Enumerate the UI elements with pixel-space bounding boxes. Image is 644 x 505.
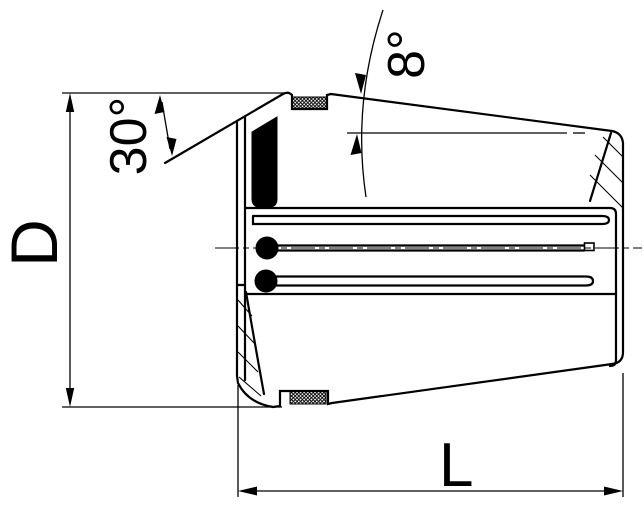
technical-drawing-canvas: D L 30° 8°	[0, 0, 644, 505]
angle-dimension-8deg: 8°	[347, 10, 585, 197]
arrowhead-up	[66, 93, 74, 112]
label-length: L	[439, 431, 473, 500]
collet-body-outline	[165, 93, 623, 407]
label-diameter: D	[0, 219, 71, 267]
arrowhead-left	[238, 487, 257, 496]
seal-band	[252, 117, 277, 207]
left-section-hatching	[238, 292, 264, 396]
slit-middle-end-notch	[585, 243, 595, 251]
label-chamfer-angle: 30°	[100, 97, 158, 176]
top-seal-cross-section	[292, 97, 327, 109]
bore-step-top	[245, 208, 616, 366]
arrowhead-to-chamfer	[167, 137, 177, 156]
label-taper-angle: 8°	[378, 29, 436, 79]
slit-relief-hole-bottom	[255, 270, 277, 292]
taper-edge-top	[331, 94, 612, 131]
right-section-hatching	[590, 133, 623, 208]
collet-section-drawing: D L 30° 8°	[0, 0, 644, 505]
arrowhead-right	[604, 487, 623, 496]
arrowhead-to-axis	[351, 134, 362, 155]
left-wall-boundary	[246, 292, 264, 394]
bore-back-chamfer	[590, 133, 611, 201]
slit-top-channel	[253, 216, 609, 224]
taper-edge-bottom	[332, 364, 612, 403]
slit-bottom-channel	[266, 277, 593, 286]
bottom-seal-cross-section	[290, 391, 326, 404]
arrowhead-down	[66, 388, 74, 407]
